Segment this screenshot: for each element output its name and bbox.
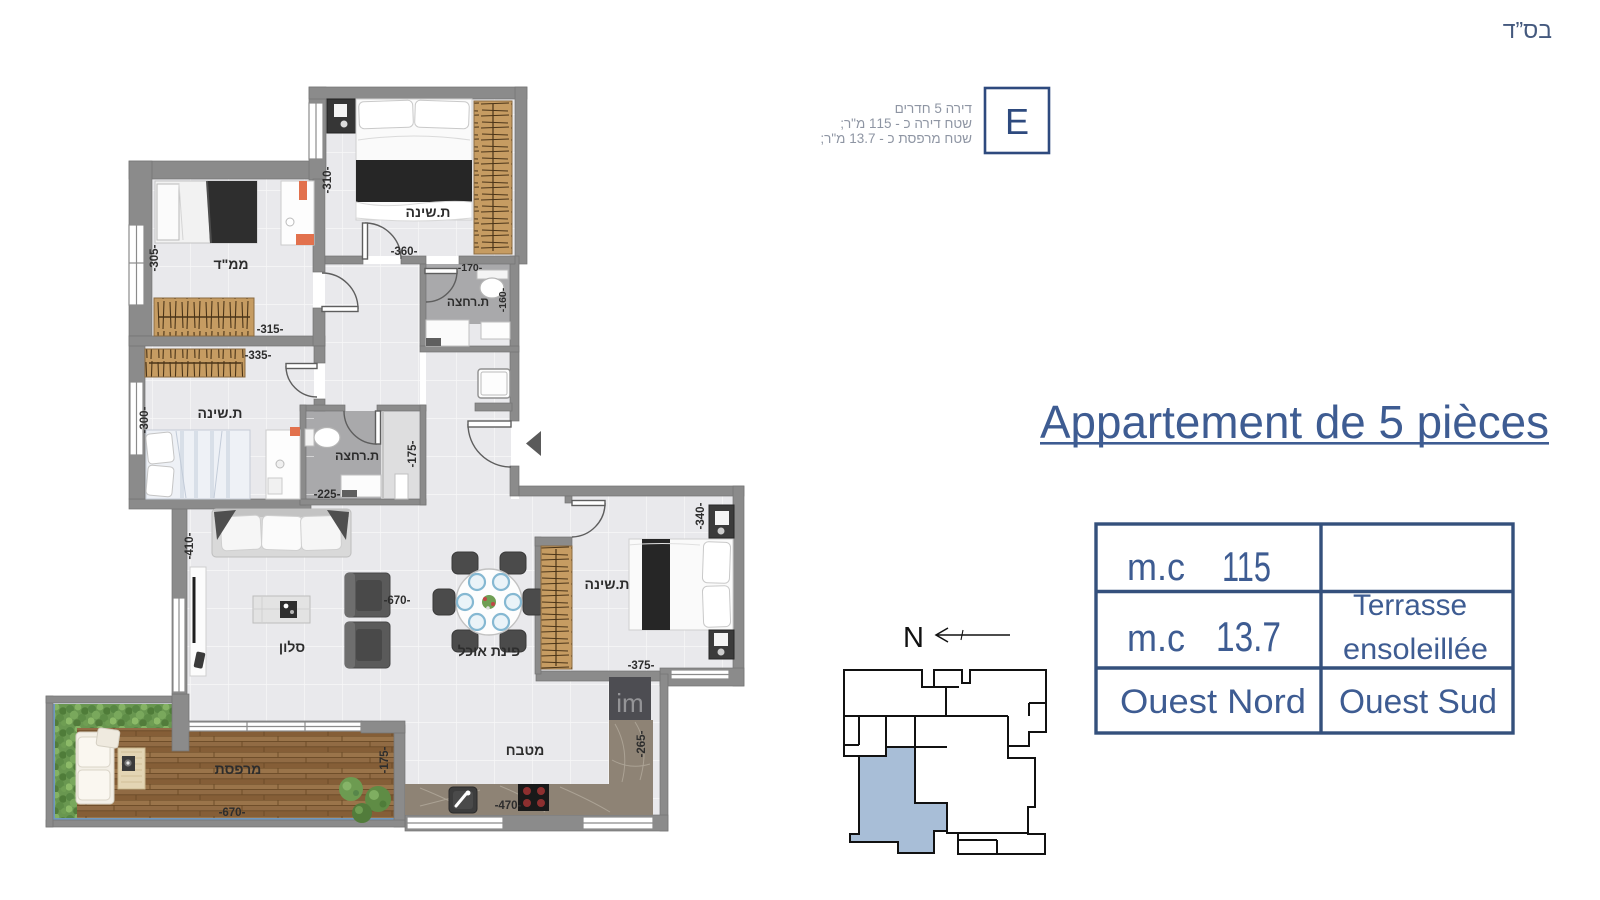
svg-text:-175-: -175- bbox=[407, 440, 419, 467]
svg-text:מטבח: מטבח bbox=[506, 742, 545, 758]
svg-text:Terrasse: Terrasse bbox=[1353, 589, 1467, 622]
svg-text:דירה 5 חדרים: דירה 5 חדרים bbox=[895, 101, 973, 116]
svg-text:-160-: -160- bbox=[497, 287, 509, 312]
svg-text:-315-: -315- bbox=[257, 324, 284, 336]
svg-text:-225-: -225- bbox=[314, 489, 341, 501]
svg-text:ת.שינה: ת.שינה bbox=[406, 204, 451, 220]
svg-text:im: im bbox=[616, 688, 643, 718]
svg-text:-170-: -170- bbox=[458, 262, 483, 274]
svg-text:-670-: -670- bbox=[219, 807, 246, 819]
svg-text:Ouest Sud: Ouest Sud bbox=[1339, 683, 1497, 721]
svg-text:-265-: -265- bbox=[636, 730, 648, 757]
svg-text:-305-: -305- bbox=[149, 244, 161, 271]
svg-text:N: N bbox=[903, 622, 924, 654]
svg-text:בס”ד: בס”ד bbox=[1503, 17, 1552, 43]
svg-text:-375-: -375- bbox=[628, 660, 655, 672]
svg-text:ensoleillée: ensoleillée bbox=[1343, 633, 1488, 666]
svg-text:שטח מרפסת כ - 13.7 מ"ר;: שטח מרפסת כ - 13.7 מ"ר; bbox=[820, 131, 972, 146]
svg-text:115: 115 bbox=[1222, 543, 1271, 590]
svg-text:-175-: -175- bbox=[379, 746, 391, 773]
svg-text:Appartement de 5 pièces: Appartement de 5 pièces bbox=[1040, 396, 1549, 448]
svg-text:ממ"ד: ממ"ד bbox=[213, 256, 248, 272]
svg-text:Ouest Nord: Ouest Nord bbox=[1120, 683, 1306, 721]
svg-text:-410-: -410- bbox=[184, 532, 196, 559]
svg-text:-310-: -310- bbox=[322, 166, 334, 193]
svg-text:-360-: -360- bbox=[391, 246, 418, 258]
svg-text:-670-: -670- bbox=[384, 595, 411, 607]
svg-text:פינת אוכל: פינת אוכל bbox=[458, 643, 521, 659]
svg-text:ת.שינה: ת.שינה bbox=[198, 405, 243, 421]
svg-text:שטח דירה כ - 115 מ"ר;: שטח דירה כ - 115 מ"ר; bbox=[840, 116, 972, 131]
svg-text:מרפסת: מרפסת bbox=[215, 761, 262, 777]
svg-text:סלון: סלון bbox=[279, 639, 305, 655]
svg-text:m.c: m.c bbox=[1127, 618, 1185, 660]
svg-text:-340-: -340- bbox=[695, 502, 707, 529]
svg-text:-470-: -470- bbox=[495, 800, 522, 812]
svg-text:ת.שינה: ת.שינה bbox=[585, 576, 630, 592]
svg-text:13.7: 13.7 bbox=[1216, 613, 1281, 660]
svg-text:m.c: m.c bbox=[1127, 547, 1185, 589]
svg-text:ת.רחצה: ת.רחצה bbox=[447, 295, 489, 309]
svg-text:-335-: -335- bbox=[245, 350, 272, 362]
svg-text:ת.רחצה: ת.רחצה bbox=[335, 449, 379, 463]
svg-text:-300-: -300- bbox=[139, 406, 151, 433]
svg-text:E: E bbox=[1005, 101, 1029, 142]
